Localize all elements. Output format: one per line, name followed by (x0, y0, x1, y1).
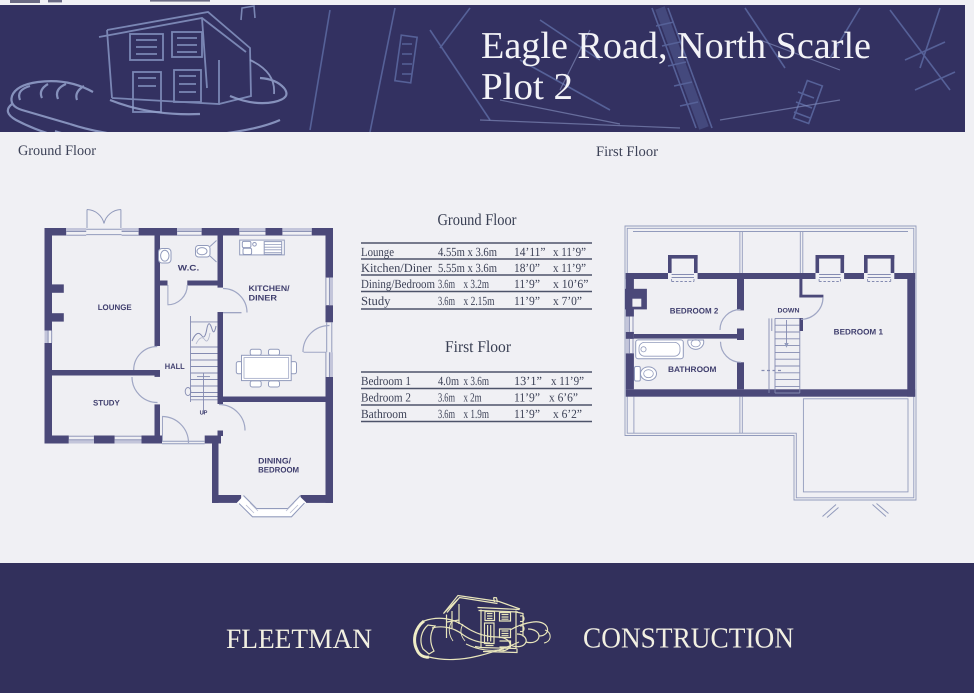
svg-text:x 6’6”: x 6’6” (549, 391, 578, 405)
svg-text:Kitchen/Diner: Kitchen/Diner (361, 261, 433, 275)
svg-text:BEDROOM 1: BEDROOM 1 (834, 327, 884, 336)
svg-text:5.55m x 3.6m: 5.55m x 3.6m (438, 261, 497, 275)
svg-text:x 11’9”: x 11’9” (551, 374, 584, 388)
svg-text:x 2m: x 2m (464, 391, 482, 405)
svg-text:Eagle Road, North Scarle: Eagle Road, North Scarle (481, 25, 871, 67)
svg-text:Bathroom: Bathroom (361, 407, 407, 421)
svg-text:W.C.: W.C. (178, 264, 199, 273)
svg-text:BEDROOM: BEDROOM (258, 465, 299, 474)
svg-text:x 3.6m: x 3.6m (464, 374, 490, 388)
svg-text:13’1”: 13’1” (514, 374, 542, 388)
svg-text:3.6m: 3.6m (438, 294, 455, 308)
svg-text:3.6m: 3.6m (438, 391, 455, 405)
svg-text:Bedroom 1: Bedroom 1 (361, 374, 411, 388)
svg-text:x 7’0”: x 7’0” (553, 294, 582, 308)
svg-text:18’0”: 18’0” (514, 261, 540, 275)
svg-text:11’9”: 11’9” (514, 294, 540, 308)
svg-text:x 6’2”: x 6’2” (553, 407, 582, 421)
svg-text:BEDROOM 2: BEDROOM 2 (670, 306, 719, 315)
svg-text:CONSTRUCTION: CONSTRUCTION (583, 623, 794, 655)
svg-text:KITCHEN/: KITCHEN/ (249, 284, 291, 293)
svg-text:Ground Floor: Ground Floor (18, 143, 96, 159)
svg-text:4.55m x 3.6m: 4.55m x 3.6m (438, 245, 497, 259)
svg-text:HALL: HALL (165, 362, 185, 371)
svg-text:UP: UP (200, 410, 208, 417)
svg-text:Ground Floor: Ground Floor (438, 210, 517, 229)
svg-text:Bedroom 2: Bedroom 2 (361, 391, 411, 405)
svg-text:BATHROOM: BATHROOM (668, 365, 717, 374)
svg-text:x 2.15m: x 2.15m (464, 294, 495, 308)
svg-text:x 10’6”: x 10’6” (553, 277, 589, 291)
svg-text:x 11’9”: x 11’9” (553, 261, 586, 275)
svg-text:x 1.9m: x 1.9m (464, 407, 490, 421)
svg-text:3.6m: 3.6m (438, 407, 455, 421)
svg-text:11’9”: 11’9” (514, 407, 540, 421)
svg-text:11’9”: 11’9” (514, 391, 540, 405)
svg-text:FLEETMAN: FLEETMAN (226, 624, 372, 655)
svg-text:Dining/Bedroom: Dining/Bedroom (361, 277, 435, 291)
svg-text:11’9”: 11’9” (514, 277, 540, 291)
svg-text:Study: Study (361, 294, 391, 308)
svg-text:Plot 2: Plot 2 (481, 66, 573, 108)
svg-text:First Floor: First Floor (596, 144, 658, 160)
svg-text:x 3.2m: x 3.2m (464, 277, 490, 291)
svg-text:DOWN: DOWN (778, 307, 800, 314)
svg-text:14’11”: 14’11” (514, 245, 546, 259)
svg-text:3.6m: 3.6m (438, 277, 455, 291)
svg-text:4.0m: 4.0m (438, 374, 459, 388)
svg-text:DINER: DINER (249, 293, 278, 302)
svg-text:x 11’9”: x 11’9” (553, 245, 586, 259)
svg-text:STUDY: STUDY (93, 398, 120, 407)
svg-text:DINING/: DINING/ (258, 457, 292, 466)
svg-text:Lounge: Lounge (361, 245, 394, 259)
svg-text:First Floor: First Floor (445, 337, 511, 356)
svg-text:LOUNGE: LOUNGE (98, 303, 133, 312)
